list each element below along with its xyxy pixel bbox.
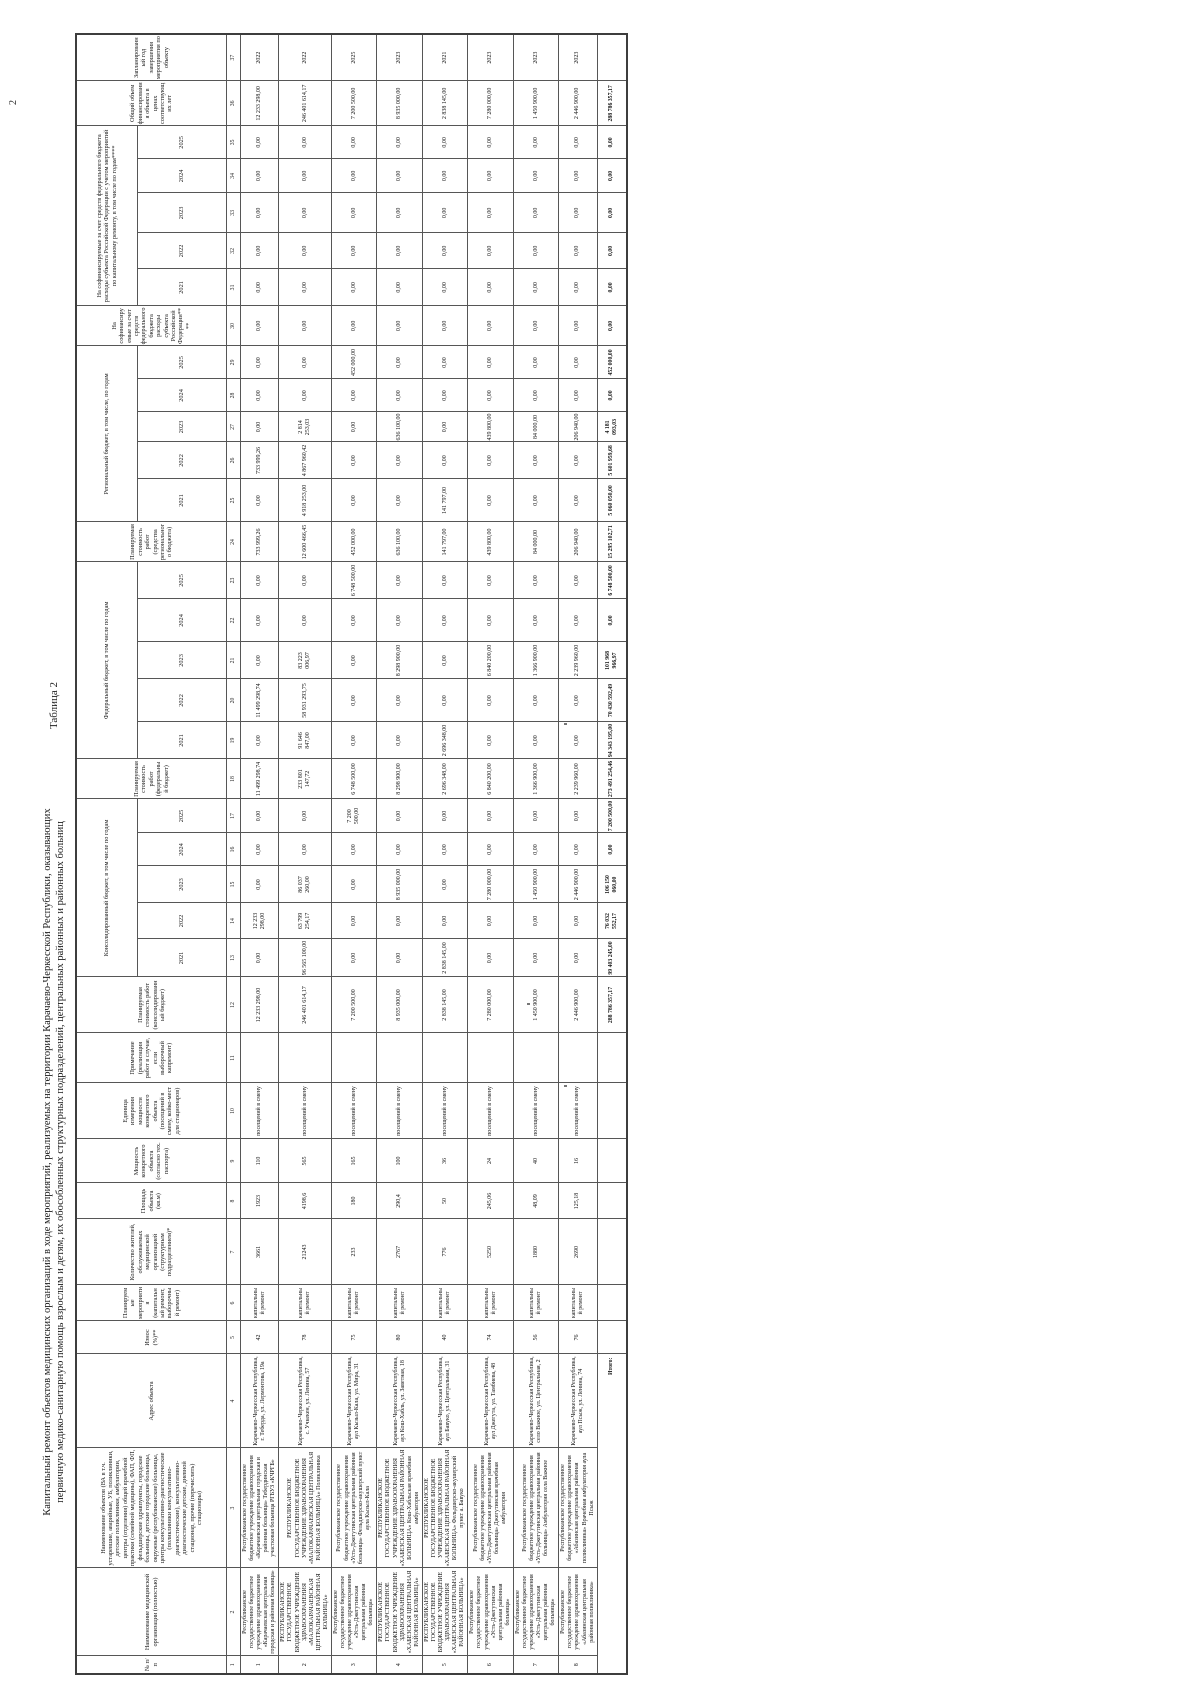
data-cell: 0,00 [279, 233, 332, 269]
data-cell: 0,00 [241, 233, 279, 269]
data-cell: 0,00 [377, 159, 422, 193]
data-cell: 206 940,00 [559, 412, 597, 442]
total-cell [597, 1219, 627, 1285]
data-cell: капитальный ремонт [377, 1285, 422, 1321]
table-row: 5РЕСПУБЛИКАНСКОЕ ГОСУДАРСТВЕННОЕ БЮДЖЕТН… [422, 34, 467, 1674]
data-cell: 0,00 [422, 562, 467, 599]
total-cell [597, 1083, 627, 1139]
data-cell: Республиканское государственное бюджетно… [331, 1448, 376, 1568]
data-cell: 636 100,00 [377, 412, 422, 442]
column-number-cell: 13 [227, 939, 241, 977]
data-cell: Республиканское государственное бюджетно… [241, 1448, 279, 1568]
total-cell: 0,00 [597, 379, 627, 412]
year-cell: 2023 [138, 642, 227, 679]
column-number-cell: 36 [227, 81, 241, 126]
data-cell: 0,00 [279, 269, 332, 306]
data-cell: 2 [279, 1656, 332, 1674]
total-cell: 288 786 357,17 [597, 81, 627, 126]
data-cell: 0,00 [331, 866, 376, 903]
data-cell: 83 223 006,97 [279, 642, 332, 679]
data-cell: 1 366 900,00 [513, 759, 558, 799]
total-cell [597, 1139, 627, 1183]
header-cell: Единица измерения мощности конкретного о… [76, 1083, 227, 1139]
data-cell: 0,00 [241, 599, 279, 642]
data-cell: 0,00 [422, 833, 467, 866]
data-cell: 8 935 000,00 [377, 977, 422, 1033]
data-cell: 0,00 [279, 193, 332, 233]
column-number-cell: 35 [227, 126, 241, 159]
year-cell: 2022 [138, 233, 227, 269]
document-title-line2: первичную медико-санитарную помощь взрос… [55, 682, 68, 1642]
data-cell: 0,00 [241, 722, 279, 759]
data-cell: 4 [377, 1656, 422, 1674]
column-number-cell: 22 [227, 599, 241, 642]
column-number-cell: 3 [227, 1448, 241, 1568]
data-cell: 0,00 [468, 233, 513, 269]
data-cell: 565 [279, 1139, 332, 1183]
data-cell: РЕСПУБЛИКАНСКОЕ ГОСУДАРСТВЕННОЕ БЮДЖЕТНО… [377, 1448, 422, 1568]
data-cell: 8 [559, 1656, 597, 1674]
header-cell: Планируемая стоимость работ (средства ре… [76, 522, 227, 562]
column-number-cell: 20 [227, 679, 241, 722]
year-cell: 2025 [138, 799, 227, 833]
data-cell: 233 801 147,72 [279, 759, 332, 799]
data-cell: 8 935 000,00 [377, 866, 422, 903]
data-cell: 2 239 960,00 [559, 642, 597, 679]
data-cell: 245,06 [468, 1183, 513, 1219]
data-cell: 0,00 [377, 479, 422, 522]
total-cell [597, 1321, 627, 1354]
data-cell: 2 696 348,00 [422, 759, 467, 799]
data-cell: 0,00 [513, 799, 558, 833]
data-cell: 11 499 298,74 [241, 679, 279, 722]
scan-speck [564, 723, 567, 725]
data-cell: 4 867 960,42 [279, 442, 332, 479]
data-cell: 0,00 [468, 269, 513, 306]
page-number: 2 [8, 100, 19, 105]
data-cell: 0,00 [559, 269, 597, 306]
data-cell: 7 280 000,00 [468, 977, 513, 1033]
data-cell: 0,00 [513, 193, 558, 233]
data-cell: 0,00 [559, 306, 597, 346]
data-cell: 0,00 [559, 346, 597, 379]
data-cell: Карачаево-Черкесская Республика, аул Кыз… [331, 1354, 376, 1448]
total-cell: 7 200 500,00 [597, 799, 627, 833]
total-cell: 0,00 [597, 193, 627, 233]
total-cell: 0,00 [597, 159, 627, 193]
year-cell: 2021 [138, 269, 227, 306]
column-number-cell: 16 [227, 833, 241, 866]
data-cell: 0,00 [468, 599, 513, 642]
data-cell: 56 [513, 1321, 558, 1354]
data-cell: 3661 [241, 1219, 279, 1285]
data-cell: 0,00 [422, 903, 467, 939]
data-cell: 0,00 [422, 599, 467, 642]
scan-speck [564, 1085, 567, 1087]
year-cell: 2022 [138, 679, 227, 722]
data-cell: 180 [331, 1183, 376, 1219]
data-cell: 0,00 [513, 442, 558, 479]
data-cell: 2023 [513, 34, 558, 81]
data-cell: 5 [422, 1656, 467, 1674]
header-group-cell: Консолидированный бюджет, в том числе по… [76, 799, 138, 977]
data-cell: 6 748 500,00 [331, 759, 376, 799]
data-cell: 16 [559, 1139, 597, 1183]
total-cell: 0,00 [597, 599, 627, 642]
data-cell: 165 [331, 1139, 376, 1183]
data-cell: 0,00 [468, 193, 513, 233]
column-number-cell: 15 [227, 866, 241, 903]
data-cell: 439 800,00 [468, 522, 513, 562]
data-cell: 0,00 [331, 442, 376, 479]
data-cell: 0,00 [241, 269, 279, 306]
column-number-cell: 1 [227, 1656, 241, 1674]
data-cell: Республиканское государственное бюджетно… [513, 1568, 558, 1656]
data-cell: 80 [377, 1321, 422, 1354]
year-cell: 2025 [138, 346, 227, 379]
data-cell: капитальный ремонт [241, 1285, 279, 1321]
data-cell [559, 1033, 597, 1083]
data-cell: 0,00 [513, 833, 558, 866]
data-cell: 2 446 900,00 [559, 81, 597, 126]
data-cell: 8 298 900,00 [377, 642, 422, 679]
data-cell: 0,00 [559, 159, 597, 193]
data-cell: 0,00 [559, 233, 597, 269]
data-cell: 206 940,00 [559, 522, 597, 562]
column-number-cell: 14 [227, 903, 241, 939]
data-cell: 12 233 298,00 [241, 903, 279, 939]
data-cell: 0,00 [422, 159, 467, 193]
data-cell: 0,00 [468, 346, 513, 379]
data-cell: 0,00 [331, 599, 376, 642]
data-cell: 0,00 [422, 233, 467, 269]
year-cell: 2022 [138, 903, 227, 939]
data-cell: 12 233 298,00 [241, 977, 279, 1033]
year-cell: 2024 [138, 379, 227, 412]
data-cell: 0,00 [241, 562, 279, 599]
column-number-cell: 32 [227, 233, 241, 269]
data-cell: 0,00 [377, 346, 422, 379]
data-cell: 0,00 [377, 193, 422, 233]
total-cell: 106 150 060,00 [597, 866, 627, 903]
data-cell: 0,00 [377, 722, 422, 759]
data-cell: 0,00 [468, 799, 513, 833]
data-cell: 2025 [331, 34, 376, 81]
data-cell: 0,00 [377, 126, 422, 159]
data-cell: 0,00 [241, 642, 279, 679]
data-cell: 2 838 145,00 [422, 81, 467, 126]
total-cell: 0,00 [597, 269, 627, 306]
data-cell: 0,00 [331, 412, 376, 442]
data-cell: 58 931 293,75 [279, 679, 332, 722]
data-cell: 0,00 [279, 379, 332, 412]
data-cell: 0,00 [468, 722, 513, 759]
data-cell: 0,00 [422, 866, 467, 903]
data-cell: РЕСПУБЛИКАНСКОЕ ГОСУДАРСТВЕННОЕ БЮДЖЕТНО… [377, 1568, 422, 1656]
data-cell: посещений в смену [279, 1083, 332, 1139]
data-cell: 12 233 298,00 [241, 81, 279, 126]
data-cell: 0,00 [513, 903, 558, 939]
data-cell: 2021 [422, 34, 467, 81]
data-cell: 636 100,00 [377, 522, 422, 562]
data-cell: 21243 [279, 1219, 332, 1285]
column-number-cell: 4 [227, 1354, 241, 1448]
data-cell: 0,00 [377, 306, 422, 346]
data-cell: 0,00 [468, 939, 513, 977]
data-cell: 733 999,26 [241, 522, 279, 562]
column-number-cell: 5 [227, 1321, 241, 1354]
data-cell: 0,00 [513, 722, 558, 759]
total-cell: 76 032 552,17 [597, 903, 627, 939]
data-cell: 110 [241, 1139, 279, 1183]
data-cell: 246 401 614,17 [279, 977, 332, 1033]
data-cell: 0,00 [422, 642, 467, 679]
data-cell: Республиканское государственное бюджетно… [241, 1568, 279, 1656]
data-cell [331, 1033, 376, 1083]
column-number-cell: 26 [227, 442, 241, 479]
header-cell: Планируемая стоимость работ (консолидиро… [76, 977, 227, 1033]
header-cell: Наименование объектов (ВА в т.ч. устарев… [76, 1448, 227, 1568]
data-cell: капитальный ремонт [468, 1285, 513, 1321]
total-cell: 94 343 195,00 [597, 722, 627, 759]
total-cell: 452 000,00 [597, 346, 627, 379]
data-cell: 776 [422, 1219, 467, 1285]
data-cell: 0,00 [331, 479, 376, 522]
data-cell: капитальный ремонт [513, 1285, 558, 1321]
data-cell: 0,00 [468, 159, 513, 193]
data-cell: 0,00 [279, 833, 332, 866]
data-cell: 0,00 [279, 346, 332, 379]
column-number-cell: 31 [227, 269, 241, 306]
column-number-cell: 21 [227, 642, 241, 679]
data-cell: 0,00 [331, 679, 376, 722]
header-group-cell: На софинансируемые за счет средств федер… [76, 126, 138, 306]
total-cell: 0,00 [597, 306, 627, 346]
data-cell: 2023 [377, 34, 422, 81]
data-cell: посещений в смену [422, 1083, 467, 1139]
scanned-page: { "page": { "caption": "Таблица 2", "pag… [0, 0, 1200, 1697]
header-cell: Площадь объекта (кв.м) [76, 1183, 227, 1219]
total-cell: 0,00 [597, 126, 627, 159]
data-cell: 0,00 [331, 642, 376, 679]
year-cell: 2021 [138, 479, 227, 522]
header-cell: Планируемая стоимость работ (федеральный… [76, 759, 227, 799]
data-cell: 0,00 [422, 379, 467, 412]
data-cell: 0,00 [422, 306, 467, 346]
data-cell: 6 748 500,00 [331, 562, 376, 599]
scan-speck [527, 1003, 530, 1005]
table-row: 8Республиканское государственное бюджетн… [559, 34, 597, 1674]
data-cell: 5250 [468, 1219, 513, 1285]
data-cell: 6 840 200,00 [468, 759, 513, 799]
data-cell [377, 1033, 422, 1083]
column-number-cell: 37 [227, 34, 241, 81]
column-number-cell: 19 [227, 722, 241, 759]
header-cell: № п/п [76, 1656, 227, 1674]
data-cell: посещений в смену [559, 1083, 597, 1139]
data-cell: 0,00 [331, 722, 376, 759]
column-number-cell: 33 [227, 193, 241, 233]
data-cell: 0,00 [468, 679, 513, 722]
data-cell: 0,00 [279, 799, 332, 833]
table-row: 6Республиканское государственное бюджетн… [468, 34, 513, 1674]
year-cell: 2023 [138, 866, 227, 903]
total-cell: 70 430 592,49 [597, 679, 627, 722]
data-cell: 0,00 [513, 479, 558, 522]
data-cell: Республиканское государственное бюджетно… [513, 1448, 558, 1568]
header-cell: Планируемые мероприятия (капитальный рем… [76, 1285, 227, 1321]
data-cell: 0,00 [513, 939, 558, 977]
total-cell: 4 181 093,03 [597, 412, 627, 442]
data-cell: Республиканское государственное бюджетно… [559, 1568, 597, 1656]
data-cell: посещений в смену [241, 1083, 279, 1139]
data-cell [468, 1033, 513, 1083]
data-cell: 2022 [241, 34, 279, 81]
data-cell: 0,00 [468, 126, 513, 159]
data-cell: 42 [241, 1321, 279, 1354]
data-cell: 0,00 [331, 126, 376, 159]
data-cell: 0,00 [559, 722, 597, 759]
data-cell: 0,00 [377, 939, 422, 977]
data-cell: 233 [331, 1219, 376, 1285]
data-cell: 0,00 [279, 562, 332, 599]
data-cell: 0,00 [241, 159, 279, 193]
data-cell: 0,00 [513, 379, 558, 412]
landscape-sheet: 2 Таблица 2 Капитальный ремонт объектов … [0, 0, 1200, 1697]
data-cell: РЕСПУБЛИКАНСКОЕ ГОСУДАРСТВЕННОЕ БЮДЖЕТНО… [279, 1448, 332, 1568]
column-number-cell: 17 [227, 799, 241, 833]
data-cell: 1 450 900,00 [513, 977, 558, 1033]
column-number-cell: 12 [227, 977, 241, 1033]
column-number-cell: 24 [227, 522, 241, 562]
data-cell: Карачаево-Черкесская Республика, аул Псы… [559, 1354, 597, 1448]
data-cell: 0,00 [468, 903, 513, 939]
header-group-cell: Федеральный бюджет, в том числе по годам [76, 562, 138, 759]
year-cell: 2023 [138, 193, 227, 233]
year-cell: 2021 [138, 722, 227, 759]
data-cell: 0,00 [513, 599, 558, 642]
data-cell: 7 200 500,00 [331, 81, 376, 126]
data-cell: 0,00 [377, 679, 422, 722]
data-cell: 24 [468, 1139, 513, 1183]
data-cell: 2690 [559, 1219, 597, 1285]
data-cell: 0,00 [559, 599, 597, 642]
data-cell: посещений в смену [331, 1083, 376, 1139]
data-cell: 6 840 200,00 [468, 642, 513, 679]
total-cell: 5 601 959,68 [597, 442, 627, 479]
data-cell: 0,00 [331, 233, 376, 269]
data-cell [513, 1033, 558, 1083]
column-number-cell: 25 [227, 479, 241, 522]
data-cell: 0,00 [513, 306, 558, 346]
total-row: Итого:288 786 357,1799 403 245,0076 032 … [597, 34, 627, 1674]
data-cell: Республиканское государственное бюджетно… [468, 1448, 513, 1568]
column-number-cell: 30 [227, 306, 241, 346]
data-cell: Республиканское государственное бюджетно… [559, 1448, 597, 1568]
data-cell: 0,00 [331, 306, 376, 346]
data-cell: 0,00 [559, 193, 597, 233]
header-cell: На софинансируемые за счет средств федер… [76, 306, 227, 346]
data-cell: 141 797,00 [422, 522, 467, 562]
data-cell [241, 1033, 279, 1083]
data-cell: 36 [422, 1139, 467, 1183]
data-cell: Карачаево-Черкесская Республика, аул Дже… [468, 1354, 513, 1448]
data-cell: 4 918 253,00 [279, 479, 332, 522]
total-cell: 0,00 [597, 833, 627, 866]
column-number-cell: 23 [227, 562, 241, 599]
data-cell: 0,00 [279, 599, 332, 642]
data-cell: 0,00 [241, 412, 279, 442]
header-cell: Адрес объекта [76, 1354, 227, 1448]
year-cell: 2024 [138, 159, 227, 193]
data-cell: 0,00 [559, 939, 597, 977]
data-cell: 84 000,00 [513, 522, 558, 562]
data-cell: 40 [513, 1139, 558, 1183]
table-row: 4РЕСПУБЛИКАНСКОЕ ГОСУДАРСТВЕННОЕ БЮДЖЕТН… [377, 34, 422, 1674]
data-cell: РЕСПУБЛИКАНСКОЕ ГОСУДАРСТВЕННОЕ БЮДЖЕТНО… [279, 1568, 332, 1656]
data-cell: 0,00 [331, 903, 376, 939]
data-cell: 0,00 [559, 562, 597, 599]
header-cell: Запланированный год завершения мероприят… [76, 34, 227, 81]
column-number-cell: 18 [227, 759, 241, 799]
total-cell: 5 060 050,00 [597, 479, 627, 522]
data-cell: 0,00 [331, 159, 376, 193]
data-cell: Карачаево-Черкесская Республика, аул Бав… [422, 1354, 467, 1448]
data-cell: капитальный ремонт [559, 1285, 597, 1321]
data-cell: 0,00 [559, 126, 597, 159]
total-cell [597, 1033, 627, 1083]
data-cell: 7 200 500,00 [331, 799, 376, 833]
data-cell: 0,00 [241, 833, 279, 866]
data-cell: 1 450 900,00 [513, 866, 558, 903]
year-cell: 2024 [138, 599, 227, 642]
table-row: 3Республиканское государственное бюджетн… [331, 34, 376, 1674]
data-cell: 125,18 [559, 1183, 597, 1219]
data-cell: 96 565 100,00 [279, 939, 332, 977]
total-cell [597, 1285, 627, 1321]
column-number-cell: 2 [227, 1568, 241, 1656]
data-cell: 0,00 [241, 193, 279, 233]
data-cell: 0,00 [559, 799, 597, 833]
data-cell: 7 280 000,00 [468, 81, 513, 126]
data-cell: 84 000,00 [513, 412, 558, 442]
data-cell: 0,00 [468, 479, 513, 522]
column-number-cell: 29 [227, 346, 241, 379]
data-cell: 0,00 [422, 412, 467, 442]
data-cell: Карачаево-Черкесская Республика, с. Учке… [279, 1354, 332, 1448]
data-cell: 0,00 [377, 562, 422, 599]
data-cell: 0,00 [422, 126, 467, 159]
data-cell: 0,00 [279, 126, 332, 159]
data-cell: 2023 [559, 34, 597, 81]
data-cell: 1923 [241, 1183, 279, 1219]
data-cell: 0,00 [241, 306, 279, 346]
data-cell: 2767 [377, 1219, 422, 1285]
year-cell: 2025 [138, 126, 227, 159]
data-cell: 0,00 [559, 833, 597, 866]
data-cell: Республиканское государственное бюджетно… [331, 1568, 376, 1656]
data-cell: 1880 [513, 1219, 558, 1285]
data-cell: 0,00 [377, 379, 422, 412]
data-cell: 0,00 [513, 159, 558, 193]
data-cell: 0,00 [279, 159, 332, 193]
header-cell: Общий объем финансирования объекта в цен… [76, 81, 227, 126]
data-cell: 0,00 [241, 866, 279, 903]
data-cell: 75 [331, 1321, 376, 1354]
header-cell: Износ (%)** [76, 1321, 227, 1354]
data-cell: посещений в смену [377, 1083, 422, 1139]
data-cell: 48,09 [513, 1183, 558, 1219]
